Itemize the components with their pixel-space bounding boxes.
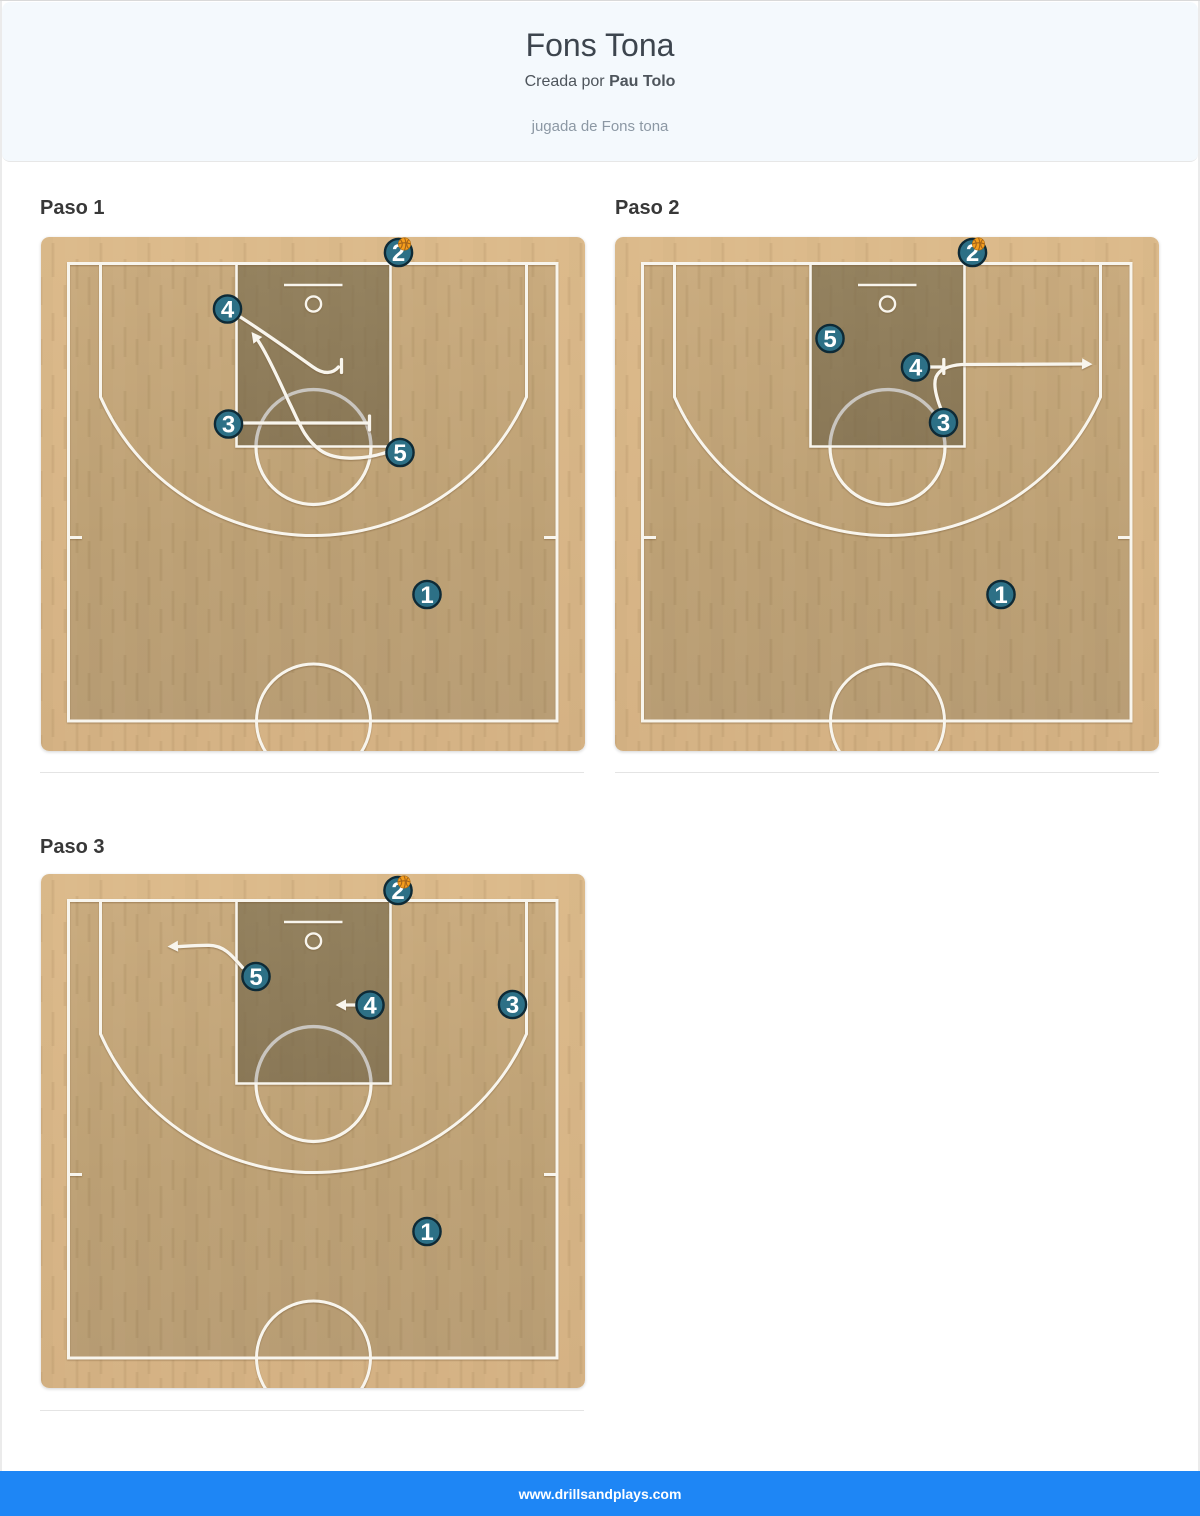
svg-text:3: 3 bbox=[506, 992, 519, 1019]
svg-text:5: 5 bbox=[393, 440, 406, 467]
svg-text:4: 4 bbox=[363, 993, 377, 1020]
svg-text:1: 1 bbox=[420, 1219, 433, 1246]
svg-text:1: 1 bbox=[420, 582, 433, 609]
svg-text:4: 4 bbox=[909, 355, 923, 382]
svg-text:4: 4 bbox=[221, 297, 235, 324]
svg-text:3: 3 bbox=[222, 412, 235, 439]
svg-text:5: 5 bbox=[249, 964, 262, 991]
svg-text:3: 3 bbox=[937, 410, 950, 437]
svg-text:1: 1 bbox=[994, 582, 1007, 609]
svg-text:5: 5 bbox=[823, 326, 836, 353]
